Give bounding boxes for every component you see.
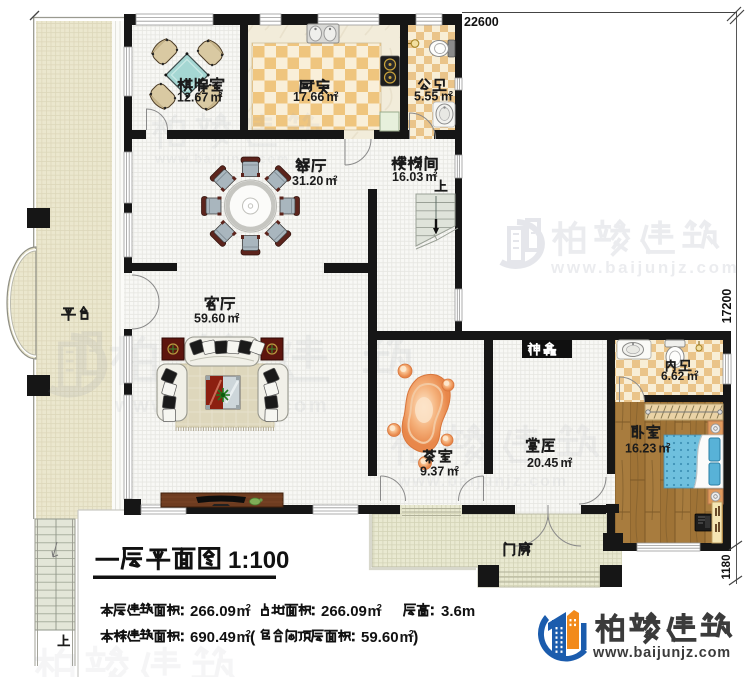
svg-text:2: 2 <box>333 173 337 182</box>
svg-text:9.37: 9.37 <box>420 465 444 479</box>
svg-text:20.45: 20.45 <box>527 456 558 470</box>
svg-text:690.49: 690.49 <box>190 629 236 646</box>
svg-text:2: 2 <box>235 311 239 320</box>
svg-text:(: ( <box>250 629 256 646</box>
svg-text:59.60: 59.60 <box>194 312 225 326</box>
svg-text:3.6m: 3.6m <box>441 603 475 620</box>
svg-text:www.baijunjz.com: www.baijunjz.com <box>154 151 290 166</box>
svg-text:22600: 22600 <box>464 15 499 29</box>
svg-text:266.09: 266.09 <box>190 603 236 620</box>
svg-text:2: 2 <box>218 90 222 99</box>
svg-text:): ) <box>413 629 418 646</box>
svg-text:2: 2 <box>568 455 572 464</box>
svg-text:www.baijunjz.com: www.baijunjz.com <box>550 258 739 277</box>
svg-text:31.20: 31.20 <box>292 174 323 188</box>
svg-text:2: 2 <box>449 89 453 98</box>
svg-text:16.03: 16.03 <box>392 170 423 184</box>
svg-text:266.09: 266.09 <box>321 603 367 620</box>
svg-text:2: 2 <box>433 169 437 178</box>
svg-text:6.62: 6.62 <box>661 369 685 383</box>
svg-text:2: 2 <box>666 441 670 450</box>
svg-text:2: 2 <box>334 89 338 98</box>
svg-text:16.23: 16.23 <box>625 442 656 456</box>
svg-text:17.66: 17.66 <box>293 90 324 104</box>
svg-text:2: 2 <box>246 602 251 612</box>
svg-text:59.60: 59.60 <box>361 629 399 646</box>
svg-text:1:100: 1:100 <box>228 547 289 574</box>
svg-text:1180: 1180 <box>721 555 733 580</box>
svg-text:2: 2 <box>694 368 698 377</box>
svg-text:www.baijunjz.com: www.baijunjz.com <box>592 645 731 661</box>
svg-text:12.67: 12.67 <box>177 91 208 105</box>
svg-text:2: 2 <box>455 464 459 473</box>
svg-text:17200: 17200 <box>720 289 734 324</box>
svg-text:5.55: 5.55 <box>414 90 438 104</box>
svg-text:2: 2 <box>377 602 382 612</box>
